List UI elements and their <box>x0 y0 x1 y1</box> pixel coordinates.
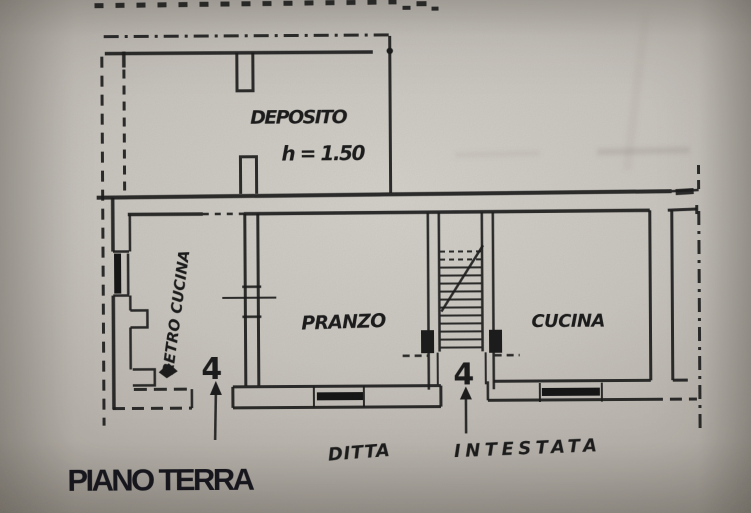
room-label-deposito: DEPOSITO <box>250 106 352 129</box>
scanned-floor-plan-page: DEPOSITO h = 1.50 <box>0 0 751 513</box>
room-label-pranzo: PRANZO <box>301 310 392 335</box>
marker-number-right: 4 <box>453 357 474 392</box>
page-title: PIANO TERRA <box>67 462 255 498</box>
stair-jamb-left <box>421 331 433 353</box>
marker-number-left: 4 <box>201 352 222 387</box>
stair-jamb-right <box>489 330 501 352</box>
window-pranzo-south <box>317 392 363 400</box>
window-left-wall <box>114 254 121 294</box>
room-label-cucina: CUCINA <box>531 311 609 332</box>
window-cucina-south <box>542 388 600 396</box>
deposito-height-note: h = 1.50 <box>281 141 367 166</box>
wall-junction-dot <box>387 48 393 54</box>
floor-plan-drawing: DEPOSITO h = 1.50 <box>0 0 751 513</box>
